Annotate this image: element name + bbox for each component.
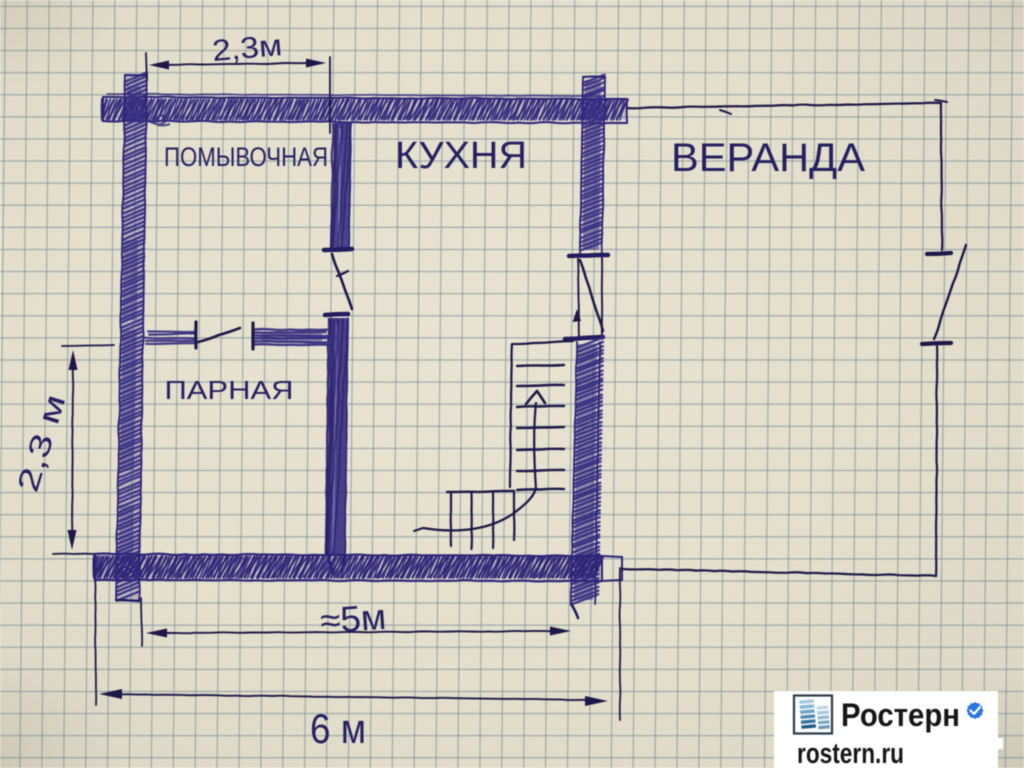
svg-text:ВЕРАНДА: ВЕРАНДА — [671, 136, 865, 180]
svg-text:Ростерн: Ростерн — [841, 697, 960, 733]
svg-text:ПОМЫВОЧНАЯ: ПОМЫВОЧНАЯ — [164, 142, 328, 172]
svg-text:rostern.ru: rostern.ru — [797, 738, 904, 768]
svg-text:ПАРНАЯ: ПАРНАЯ — [165, 375, 294, 405]
svg-text:≈5м: ≈5м — [319, 596, 388, 642]
svg-text:2,3м: 2,3м — [211, 29, 284, 68]
svg-text:6 м: 6 м — [310, 705, 366, 752]
svg-text:КУХНЯ: КУХНЯ — [395, 135, 527, 177]
